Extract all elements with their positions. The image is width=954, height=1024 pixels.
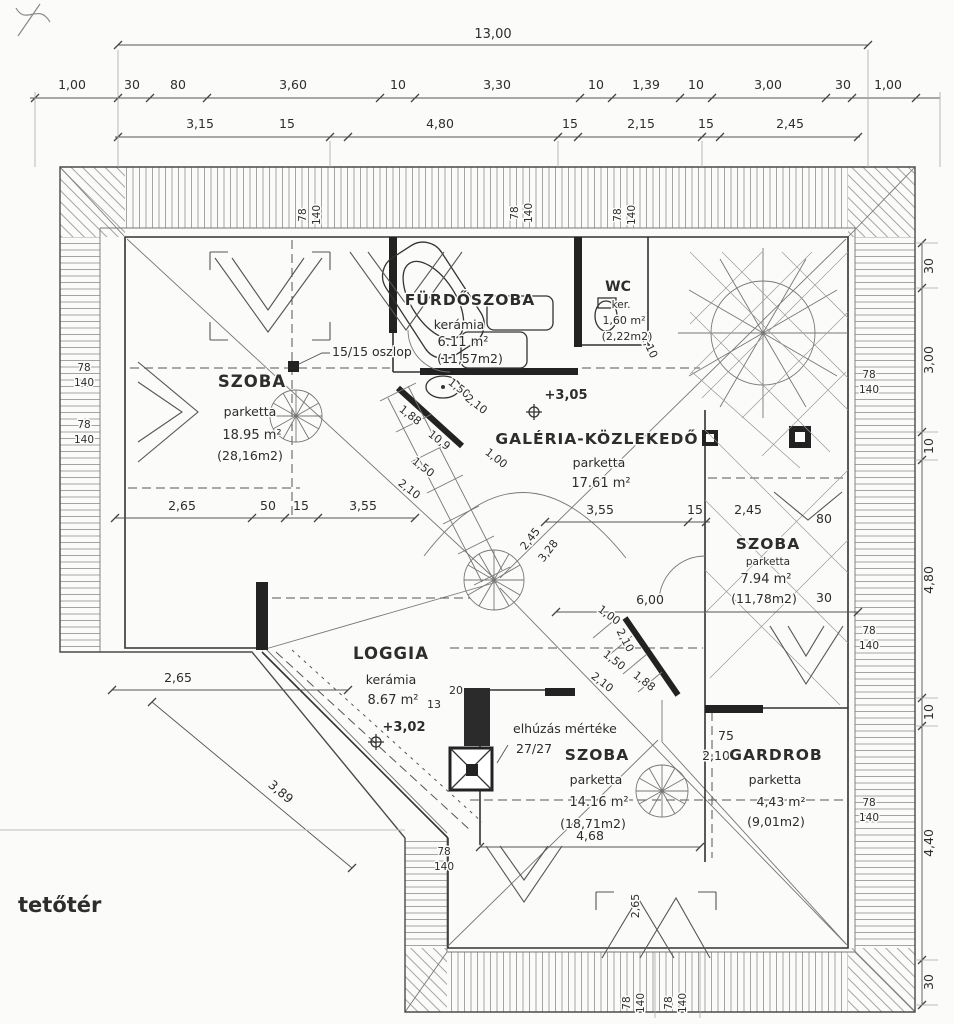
room-area-furdoszoba: 6.11 m² — [438, 335, 489, 350]
room-area-szoba-bottom: 14.16 m² — [569, 795, 628, 810]
room-name-szoba-right: SZOBA — [736, 535, 800, 553]
dim-row2-4: 10 — [390, 77, 406, 92]
fan-rosette-center — [464, 550, 524, 610]
dim-row3-2: 4,80 — [426, 116, 454, 131]
room-name-furdoszoba: FÜRDŐSZOBA — [405, 289, 536, 309]
room-gross-furdoszoba: (11,57m2) — [437, 351, 503, 366]
stair-riser-note: 20 — [449, 684, 463, 697]
dim-row2-0: 1,00 — [58, 77, 86, 92]
window-mark-h: 140 — [74, 377, 94, 389]
dim-row3-3: 15 — [562, 116, 578, 131]
dim-centermid-1: 15 — [687, 502, 703, 517]
window-mark-h: 140 — [635, 993, 647, 1013]
stair-tread-note: 13 — [427, 698, 441, 711]
dim-row2-3: 3,60 — [279, 77, 307, 92]
window-mark-w: 78 — [509, 206, 521, 219]
window-mark-w: 78 — [77, 419, 90, 431]
pencil-scribble — [16, 4, 50, 36]
window-mark-h: 140 — [626, 205, 638, 225]
dim-row2-7: 1,39 — [632, 77, 660, 92]
room-name-wc: WC — [605, 279, 631, 295]
window-mark-w: 78 — [862, 797, 875, 809]
window-mark-w: 78 — [663, 996, 675, 1009]
window-mark-h: 140 — [74, 434, 94, 446]
dim-diag-6: 2,45 — [518, 525, 543, 552]
room-gross-szoba-bottom: (18,71m2) — [560, 816, 626, 831]
dim-leftmid-2: 15 — [293, 498, 309, 513]
window-mark-w: 78 — [862, 369, 875, 381]
dim-diag-4: 2,10 — [395, 477, 422, 502]
room-name-galeria: GALÉRIA-KÖZLEKEDŐ — [495, 428, 698, 448]
floor-plan-drawing: 13,00 1,00 30 80 3,60 10 3,30 10 1,39 10… — [0, 0, 954, 1024]
dim-right-0: 30 — [921, 258, 936, 274]
window-mark-w: 78 — [612, 208, 624, 221]
room-area-wc: 1,60 m² — [602, 314, 645, 327]
room-gross-wc: (2,22m2) — [602, 330, 653, 343]
room-name-szoba-left: SZOBA — [218, 372, 286, 391]
room-gross-gardrob: (9,01m2) — [747, 814, 805, 829]
fan-rosette-bottom — [636, 765, 688, 817]
dim-diag-5: 1,00 — [482, 446, 509, 471]
dim-diag-14: 2,65 — [629, 894, 642, 919]
dim-right-5: 4,40 — [921, 829, 936, 857]
room-area-galeria: 17.61 m² — [571, 476, 630, 491]
chimney — [450, 688, 492, 790]
window-mark-h: 140 — [859, 640, 879, 652]
dim-row3-0: 3,15 — [186, 116, 214, 131]
room-finish-furdoszoba: kerámia — [434, 317, 485, 332]
dim-rightmid-1: 30 — [816, 590, 832, 605]
column-note: 15/15 oszlop — [332, 344, 412, 359]
window-mark-w: 78 — [297, 208, 309, 221]
dim-lowerleft-0: 2,65 — [164, 670, 192, 685]
dim-row3-4: 2,15 — [627, 116, 655, 131]
dim-right-3: 4,80 — [921, 566, 936, 594]
room-finish-galeria: parketta — [573, 455, 626, 470]
dim-leftmid-1: 50 — [260, 498, 276, 513]
dim-leftmid-3: 3,55 — [349, 498, 377, 513]
room-finish-wc: ker. — [612, 299, 631, 311]
room-finish-szoba-left: parketta — [224, 404, 277, 419]
dim-row2-6: 10 — [588, 77, 604, 92]
dim-diag-12: 1,88 — [630, 669, 657, 694]
room-finish-szoba-right: parketta — [746, 556, 790, 568]
dim-gardrob-0: 75 — [718, 728, 734, 743]
dim-row2-10: 30 — [835, 77, 851, 92]
dim-leftmid-0: 2,65 — [168, 498, 196, 513]
dim-row3-5: 15 — [698, 116, 714, 131]
dim-rightmid-2: 80 — [816, 511, 832, 526]
room-gross-szoba-left: (28,16m2) — [217, 448, 283, 463]
room-name-loggia: LOGGIA — [353, 644, 429, 663]
window-mark-h: 140 — [859, 812, 879, 824]
window-mark-h: 140 — [434, 861, 454, 873]
room-finish-szoba-bottom: parketta — [570, 772, 623, 787]
dim-centermid-0: 3,55 — [586, 502, 614, 517]
room-area-szoba-right: 7.94 m² — [741, 572, 792, 587]
window-mark-h: 140 — [859, 384, 879, 396]
level-marker-gallery: +3,05 — [526, 388, 587, 420]
dim-row2-9: 3,00 — [754, 77, 782, 92]
level-loggia: +3,02 — [383, 720, 426, 735]
dim-lowerleft-1: 3,89 — [265, 777, 296, 806]
dim-right-4: 10 — [921, 704, 936, 720]
dim-diag-2: 2,10 — [462, 392, 489, 417]
room-area-gardrob: 4,43 m² — [757, 794, 806, 809]
level-marker-loggia: +3,02 — [368, 720, 425, 750]
dim-diag-11: 2,10 — [588, 670, 615, 695]
window-mark-h: 140 — [677, 993, 689, 1013]
dim-right-2: 10 — [921, 438, 936, 454]
dim-gardrob-1: 2,10 — [702, 748, 730, 763]
floor-plan-page: 13,00 1,00 30 80 3,60 10 3,30 10 1,39 10… — [0, 0, 954, 1024]
dim-row2-1: 30 — [124, 77, 140, 92]
window-mark-w: 78 — [77, 362, 90, 374]
dim-diag-7: 3,28 — [536, 537, 561, 564]
dim-row2-2: 80 — [170, 77, 186, 92]
dim-rightmid-0: 6,00 — [636, 592, 664, 607]
window-mark-w: 78 — [437, 846, 450, 858]
dim-overall: 13,00 — [474, 27, 511, 42]
dim-row2-5: 3,30 — [483, 77, 511, 92]
dim-row3-6: 2,45 — [776, 116, 804, 131]
window-mark-h: 140 — [311, 205, 323, 225]
dim-right-6: 30 — [921, 974, 936, 990]
room-name-szoba-bottom: SZOBA — [565, 746, 629, 764]
room-finish-loggia: kerámia — [366, 672, 417, 687]
dim-diag-8: 1,00 — [595, 603, 622, 628]
dim-diag-3: 1,50 — [409, 455, 436, 480]
dim-rightmid-3: 2,45 — [734, 502, 762, 517]
room-area-loggia: 8.67 m² — [368, 693, 419, 708]
window-mark-w: 78 — [621, 996, 633, 1009]
dim-row2-8: 10 — [688, 77, 704, 92]
room-area-szoba-left: 18.95 m² — [222, 428, 281, 443]
drawing-title: tetőtér — [18, 893, 102, 917]
window-mark-w: 78 — [862, 625, 875, 637]
room-finish-gardrob: parketta — [749, 772, 802, 787]
offset-note-label: elhúzás mértéke — [513, 721, 617, 736]
offset-note-value: 27/27 — [516, 741, 552, 756]
room-gross-szoba-right: (11,78m2) — [731, 591, 797, 606]
window-mark-h: 140 — [523, 203, 535, 223]
dim-right-1: 3,00 — [921, 346, 936, 374]
column-15x15 — [288, 361, 299, 372]
room-name-gardrob: GARDROB — [729, 746, 822, 764]
dim-row3-1: 15 — [279, 116, 295, 131]
dim-row2-11: 1,00 — [874, 77, 902, 92]
level-gallery: +3,05 — [545, 388, 588, 403]
